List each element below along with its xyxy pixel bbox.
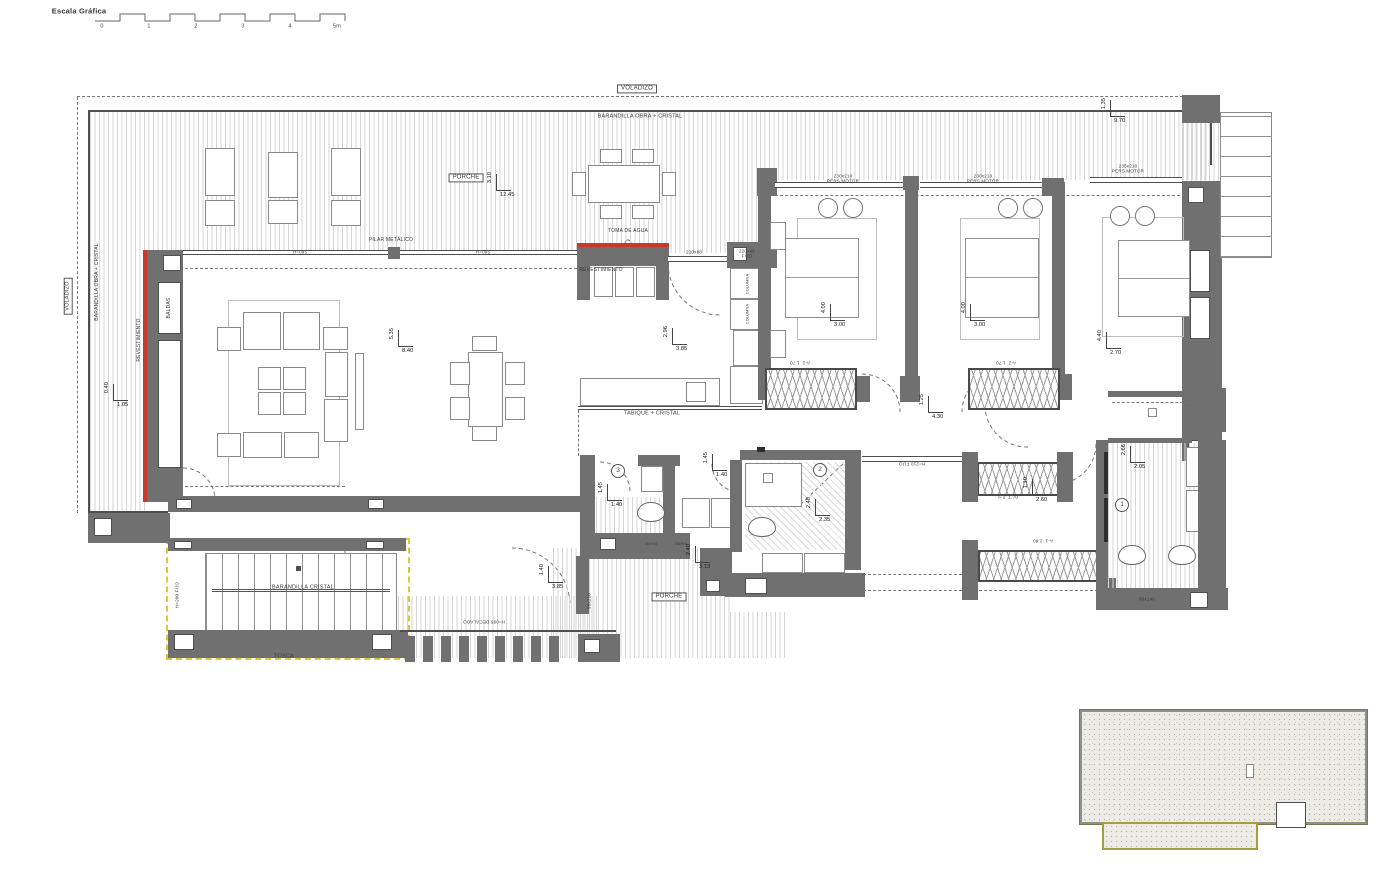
fence-post [441, 636, 451, 662]
terrace-boundary [88, 110, 1212, 112]
dimension-horizontal: 3.00 [834, 322, 845, 328]
dimension-vertical: 3.10 [487, 172, 493, 183]
fence-post [423, 636, 433, 662]
steel-pillar [388, 247, 400, 259]
outdoor-chair [600, 205, 622, 219]
wall-segment [638, 455, 680, 466]
plan-label: PORCHE [652, 592, 687, 601]
dimension-vertical: 2.40 [686, 544, 692, 555]
wall-inset [1190, 592, 1208, 608]
plot-symbol [1246, 764, 1254, 778]
plan-label: A-1 2.80 [1033, 538, 1053, 543]
window-band [668, 256, 730, 262]
dimension-horizontal: 3.85 [552, 584, 563, 590]
fence-post [513, 636, 523, 662]
armchair [217, 327, 241, 351]
wall-inset [600, 538, 616, 550]
toilet [748, 517, 776, 537]
dimension-vertical: 0.40 [104, 382, 110, 393]
wall-segment [962, 540, 978, 600]
plan-label: BALDAS [166, 298, 172, 319]
dimension-horizontal: 9.70 [1114, 118, 1125, 124]
wall-inset [366, 541, 384, 549]
wall-inset [745, 578, 767, 594]
wall-segment [1096, 588, 1228, 610]
sideboard-element [686, 382, 706, 402]
dimension-horizontal: 3.85 [676, 346, 687, 352]
sun-lounger [205, 148, 235, 196]
wall-segment [1057, 452, 1073, 502]
plan-label: COLUMNA [746, 274, 751, 294]
dimension-vertical: 2.66 [1121, 444, 1127, 455]
dimension-horizontal: 1.40 [716, 472, 727, 478]
wall-segment [580, 455, 595, 535]
dimension-vertical: 2.96 [663, 326, 669, 337]
porch-dashed-line [858, 590, 1098, 592]
plan-label: 90x210 [586, 593, 591, 609]
coffee-table [258, 367, 281, 390]
coffee-table [258, 392, 281, 415]
stair-marker [296, 566, 301, 571]
wall-inset [174, 634, 194, 650]
dimension-vertical: 1.45 [598, 482, 604, 493]
plan-label: 235x210 PERS MOTOR [1112, 164, 1144, 175]
plan-label: H=210 FIJO [899, 461, 925, 466]
plan-label: 220x88 [686, 249, 702, 254]
wall-inset [584, 639, 600, 653]
plan-label: Escala Gráfica [52, 7, 107, 16]
wall-segment [1108, 391, 1188, 397]
bedside-table [770, 330, 786, 358]
fireplace-niche [158, 340, 181, 468]
scale-tick-label: 2 [194, 24, 197, 31]
wall-segment [845, 450, 861, 570]
scale-tick-label: 4 [288, 24, 291, 31]
fence-post [477, 636, 487, 662]
plan-label: 90x140 [1139, 596, 1155, 601]
dimension-horizontal: 2.05 [1134, 464, 1145, 470]
kitchen-island [577, 247, 669, 266]
ceiling-dashed-line [185, 268, 577, 270]
bed-midline [1118, 278, 1190, 279]
wall-inset [368, 499, 384, 509]
terrace-boundary [88, 110, 90, 513]
dimension-vertical: 1.40 [539, 564, 545, 575]
outdoor-chair [572, 172, 586, 196]
scale-tick-label: 1 [147, 24, 150, 31]
dimension-horizontal: 8.40 [402, 348, 413, 354]
dining-chair [505, 397, 525, 420]
wall-pier [757, 168, 777, 196]
sofa-cushion [284, 432, 319, 458]
wall-segment [580, 533, 690, 559]
dimension-vertical: 4.40 [1097, 330, 1103, 341]
shower-drain [763, 473, 773, 483]
ceiling-dashed-line [185, 486, 345, 488]
scale-tick-label: 5m [333, 24, 341, 31]
dining-chair [450, 397, 470, 420]
bed-pillow [818, 198, 838, 218]
sofa-cushion [243, 432, 282, 458]
bed-pillow [843, 198, 863, 218]
dimension-horizontal: 2.70 [1110, 350, 1121, 356]
wall-inset [163, 255, 181, 271]
vanity-sink [804, 553, 845, 573]
plan-label: A-2 1.70 [790, 360, 810, 365]
dimension-horizontal: 12.45 [500, 192, 515, 198]
plan-label: H=095 DECALADO [463, 619, 505, 624]
bed-pillow [1135, 206, 1155, 226]
plan-label: 220x45 FIJO [739, 249, 755, 260]
plan-label: VOLADIZO [617, 84, 657, 93]
room-number-badge: 2 [813, 463, 827, 477]
outdoor-chair [662, 172, 676, 196]
plan-label: TABIQUE + CRISTAL [624, 411, 680, 418]
dimension-horizontal: 3.13 [699, 564, 710, 570]
window-band [1090, 177, 1182, 183]
wall-segment [1198, 440, 1226, 590]
wall-segment [1182, 95, 1220, 123]
fence-post [495, 636, 505, 662]
wardrobe [765, 368, 857, 410]
scale-tick-label: 3 [241, 24, 244, 31]
cabinet [682, 498, 710, 528]
dimension-horizontal: 1.05 [117, 402, 128, 408]
wall-segment [905, 178, 918, 400]
dimension-horizontal: 2.35 [819, 517, 830, 523]
kitchen-island [656, 266, 669, 300]
bed-outline [965, 238, 1039, 318]
outdoor-chair [600, 149, 622, 163]
dining-chair [472, 336, 497, 351]
bed-pillow [1023, 198, 1043, 218]
overhang-dashed-line [77, 96, 1213, 98]
plot-notch [1276, 802, 1306, 828]
stair-treads [205, 553, 397, 631]
dimension-vertical: 1.10 [1023, 477, 1029, 488]
stippled-plot [1080, 710, 1367, 824]
bed-midline [785, 277, 859, 278]
sofa-cushion [323, 327, 348, 350]
wall-niche [1190, 297, 1210, 339]
sun-lounger [331, 200, 361, 226]
bedside-table [770, 222, 786, 250]
dining-table [468, 352, 503, 427]
dimension-vertical: 4.00 [961, 302, 967, 313]
plan-label: 04x06 [645, 541, 657, 546]
sofa-cushion [243, 312, 281, 350]
wall-inset [94, 518, 112, 536]
dimension-horizontal: 4.30 [932, 414, 943, 420]
fence-post [459, 636, 469, 662]
sun-lounger [268, 200, 298, 224]
sliding-glass-wall [183, 250, 577, 255]
plan-label: VOLADIZO [64, 277, 73, 314]
plan-label: REVESTIMIENTO [579, 267, 622, 273]
plan-label: BARANDILLA CRISTAL [272, 585, 334, 592]
wall-segment [962, 452, 978, 502]
dining-chair [450, 362, 470, 385]
plan-label: BARANDILLA OBRA + CRISTAL [94, 243, 100, 321]
wardrobe [978, 550, 1098, 582]
plan-label: COLUMNA [746, 304, 751, 324]
wall-segment [663, 466, 675, 540]
fence-post [549, 636, 559, 662]
plan-label: H=095 [293, 249, 307, 254]
stippled-plot-step [1102, 822, 1258, 850]
vanity-sink [762, 553, 803, 573]
sofa-cushion [324, 399, 348, 442]
plan-label: A-2 1.70 [996, 360, 1016, 365]
toilet [1118, 545, 1146, 565]
outdoor-table [588, 165, 660, 203]
wall-segment [1052, 182, 1065, 374]
dimension-horizontal: 1.40 [611, 502, 622, 508]
ceiling-dashed-line [578, 410, 580, 456]
dimension-vertical: 1.35 [1101, 98, 1107, 109]
fence-rail [400, 630, 616, 632]
armchair [217, 433, 241, 457]
wall-inset [174, 541, 192, 549]
washbasin [641, 466, 663, 492]
plan-label: TOSCA [274, 654, 294, 661]
tap-symbol [757, 447, 765, 452]
coffee-table [283, 392, 306, 415]
overhang-dashed-line [765, 195, 1185, 197]
island-stool [636, 267, 655, 297]
dimension-vertical: 2.48 [806, 497, 812, 508]
outdoor-chair [632, 205, 654, 219]
exterior-stair-steps [1220, 112, 1272, 258]
room-number-badge: 3 [611, 464, 625, 478]
dimension-vertical: 4.00 [821, 302, 827, 313]
dining-chair [505, 362, 525, 385]
plan-label: 230x210 PERS MOTOR [967, 174, 999, 185]
dimension-vertical: 5.35 [389, 328, 395, 339]
wall-inset [372, 634, 392, 650]
bidet [1168, 545, 1196, 565]
sofa-cushion [325, 352, 348, 397]
hatched-deck [730, 612, 785, 658]
sun-lounger [268, 152, 298, 198]
dining-chair [472, 426, 497, 441]
plan-label: TOMA DE AGUA [608, 228, 648, 234]
wall-segment [1190, 388, 1226, 432]
sofa-cushion [283, 312, 320, 350]
plan-label: 230x210 PERS MOTOR [827, 174, 859, 185]
wall-inset [1188, 187, 1204, 203]
plan-label: H=095 [476, 249, 490, 254]
wall-inset [706, 580, 720, 592]
scale-tick-label: 0 [100, 24, 103, 31]
wall-pier [900, 376, 920, 402]
skylight-symbol [1148, 408, 1157, 417]
door-arc-dressing [985, 405, 1028, 447]
wardrobe [977, 462, 1059, 496]
hatched-deck [1182, 123, 1220, 181]
floor-plan: Escala GráficaVOLADIZOBARANDILLA OBRA + … [0, 0, 1400, 878]
graphic-scale-bar [95, 14, 345, 21]
plan-label: BARANDILLA OBRA + CRISTAL [598, 114, 683, 121]
sun-lounger [331, 148, 361, 196]
overhang-dashed-line [77, 97, 79, 513]
sun-lounger [205, 200, 235, 226]
shower-enclosure [745, 463, 802, 507]
wardrobe [968, 368, 1060, 410]
ceiling-dashed-line [1112, 402, 1188, 404]
plan-label: REVESTIMIENTO [136, 318, 142, 361]
fence-post [531, 636, 541, 662]
dimension-vertical: 1.25 [919, 394, 925, 405]
sofa-back [355, 353, 364, 430]
bed-pillow [1110, 206, 1130, 226]
glass-partition [578, 406, 762, 410]
plan-label: PILAR METÁLICO [369, 237, 413, 243]
plan-label: PORCHE [449, 173, 484, 182]
dimension-horizontal: 3.00 [974, 322, 985, 328]
room-number-badge: 1 [1115, 498, 1129, 512]
toilet [637, 502, 665, 522]
outdoor-chair [632, 149, 654, 163]
door-arc-kitchen [668, 263, 720, 315]
dimension-horizontal: 2.60 [1036, 497, 1047, 503]
dimension-vertical: 1.45 [703, 452, 709, 463]
plan-label: A-2 1.70 [998, 494, 1018, 499]
bed-midline [965, 277, 1039, 278]
coffee-table [283, 367, 306, 390]
bed-pillow [998, 198, 1018, 218]
plan-label: H=200 FIJO [174, 582, 179, 608]
wall-inset [176, 499, 192, 509]
wall-niche [1190, 250, 1210, 292]
wall-segment [730, 460, 742, 552]
fence-post [405, 636, 415, 662]
